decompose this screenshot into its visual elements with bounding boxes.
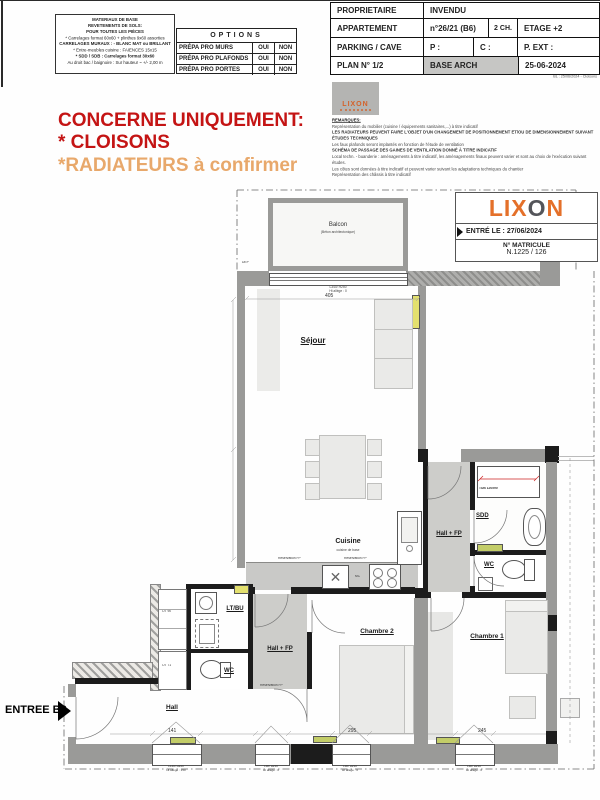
washing-machine-drum (199, 596, 213, 610)
notice-line-2: * CLOISONS (58, 132, 304, 154)
washbasin-bowl (528, 515, 541, 539)
options-table: OPTIONS PRÉPA PRO MURS OUI NON PRÉPA PRO… (176, 28, 297, 74)
hall-label: Hall (166, 704, 178, 711)
window-glass-line (270, 280, 407, 281)
cuisine-label: Cuisine (312, 538, 384, 545)
radiator (170, 737, 196, 744)
dimension-line (231, 297, 236, 562)
window-glass-line (270, 277, 407, 278)
materials-box: MATERIAUX DE BASE REVETEMENTS DE SOLS: P… (55, 14, 175, 74)
option-oui: OUI (252, 65, 274, 75)
wall-segment (461, 449, 546, 462)
dim-text: 245 (478, 728, 487, 734)
stamp-marker-icon (457, 227, 463, 237)
wc-cabinet (478, 577, 493, 591)
wall-segment (307, 632, 312, 689)
window-sill: Ht allège : 0 (449, 769, 499, 773)
shower-tub (477, 466, 540, 498)
reservation-fp-label: Réservation FP (278, 557, 301, 560)
rainwater-pipe-label: DEP (242, 261, 249, 264)
window-glass-line (256, 754, 289, 755)
window (152, 744, 202, 766)
hall-fp-right-area (428, 462, 470, 592)
option-non: NON (274, 65, 296, 75)
radiator (234, 585, 249, 594)
bed (339, 645, 414, 734)
balcony-label: Balcon (268, 222, 408, 228)
boiler-inner (199, 624, 215, 644)
remarks-line: Représentation des châssis à titre indic… (332, 173, 597, 179)
bay-window-label: L340/ H250 Ht allège : 0 (311, 285, 366, 294)
hall-fp-right-label: Hall + FP (421, 531, 477, 537)
column (546, 731, 557, 745)
notice-line-3: *RADIATEURS à confirmer (58, 155, 304, 177)
window-sill: Ht allège : 0 (246, 769, 296, 773)
terrace-rail-line (558, 460, 594, 461)
window-label: L90/ H210 Ht allège : 0 (246, 765, 296, 773)
radiator (436, 737, 460, 744)
wall-segment (414, 598, 428, 745)
options-title: OPTIONS (177, 29, 296, 43)
notice-block: CONCERNE UNIQUEMENT: * CLOISONS *RADIATE… (58, 110, 304, 177)
window (455, 744, 495, 766)
option-label: PRÉPA PRO PORTES (177, 65, 252, 75)
frame-top-line (0, 0, 600, 1)
sejour-label: Séjour (283, 336, 343, 345)
apartment-floor: ETAGE +2 (518, 19, 599, 37)
wall-segment (237, 286, 245, 568)
burner (373, 568, 383, 578)
title-block: PROPRIETAIRE INVENDU APPARTEMENT n°26/21… (330, 2, 600, 75)
notice-line-1: CONCERNE UNIQUEMENT: (58, 110, 304, 132)
apartment-rooms: 2 CH. (489, 19, 518, 37)
stamp-entered-text: ENTRÉ LE : 27/06/2024 (466, 228, 542, 235)
apartment-label: APPARTEMENT (331, 19, 424, 37)
window-swing-line (455, 725, 493, 743)
parking-ext: P. EXT : (518, 38, 599, 56)
washing-machine (195, 592, 217, 614)
owner-value: INVENDU (424, 3, 599, 18)
parking-label: PARKING / CAVE (331, 38, 424, 56)
title-block-row: PROPRIETAIRE INVENDU (331, 3, 599, 19)
option-non: NON (274, 54, 296, 64)
window-glass-line (456, 754, 494, 755)
radiator (412, 295, 420, 329)
frame-left-line (1, 0, 3, 87)
chair (305, 483, 320, 500)
window-sill: Ht allège : 150 (151, 769, 201, 773)
boiler-unit (195, 619, 219, 648)
toilet-tank (524, 559, 535, 581)
lixon-logo-lix: LIX (489, 195, 528, 222)
stamp-entered-row: ENTRÉ LE : 27/06/2024 (456, 223, 597, 240)
chair (367, 461, 382, 478)
mc-label: MC (355, 575, 360, 578)
entree-arrow-icon (58, 701, 71, 721)
plan-base-cell: BASE ARCH (424, 57, 519, 74)
dim-text: 141 (168, 728, 177, 734)
closet-label: OT 71 (162, 664, 171, 667)
structural-wall (72, 662, 153, 679)
options-row: PRÉPA PRO PLAFONDS OUI NON (177, 54, 296, 65)
matricule-value: N.1225 / 126 (456, 249, 597, 256)
balcony-sublabel: (Béton architectonique) (311, 230, 366, 234)
options-row: PRÉPA PRO MURS OUI NON (177, 43, 296, 54)
wardrobe-zone (428, 612, 453, 740)
lixon-small-dots (340, 109, 371, 111)
wall-segment (470, 462, 475, 510)
plan-date-cell: 25-06-2024 (519, 57, 599, 74)
wall-segment (418, 449, 428, 462)
window-sill: Ht allège : 0 (311, 289, 366, 293)
materials-line: CARRELAGES MURAUX : - BLANC MAT ou BRILL… (56, 42, 174, 48)
apartment-value: n°26/21 (B6) (424, 19, 489, 37)
hall-fp-mid-label: Hall + FP (253, 646, 307, 652)
chambre1-label: Chambre 1 (448, 633, 526, 640)
sink-basin (401, 517, 418, 543)
ltbu-label: LT/BU (220, 606, 250, 612)
lixon-logo-n: N (547, 195, 565, 222)
title-block-row: APPARTEMENT n°26/21 (B6) 2 CH. ETAGE +2 (331, 19, 599, 38)
window-sill: Ht allège : 0 (325, 769, 375, 773)
oven-reservation (322, 565, 349, 589)
revision-note: BL : 25/06/2024 - Cloisons (487, 75, 597, 79)
exterior-unit (560, 698, 580, 718)
shower-tub-label: TUB 120x90 (479, 487, 498, 490)
plan-number-label: PLAN N° 1/2 (331, 57, 424, 74)
wall-segment (462, 592, 546, 598)
closet-label: OT 90 (162, 610, 171, 613)
option-non: NON (274, 43, 296, 53)
option-oui: OUI (252, 54, 274, 64)
window-swing-line (255, 726, 288, 743)
remarks-block: REMARQUES: Représentation du mobilier (c… (332, 118, 597, 180)
radiator (477, 544, 503, 552)
window-label: L90/ H210 Ht allège : 0 (325, 765, 375, 773)
option-oui: OUI (252, 43, 274, 53)
wall-segment (68, 684, 76, 697)
lixon-logo: LIXON (456, 193, 597, 223)
lixon-small-logo: LIXON (332, 101, 379, 108)
wc-right-label: WC (484, 562, 494, 568)
sofa-cushion-line (375, 329, 412, 330)
wall-segment (415, 588, 428, 598)
remarks-line: LES RADIATEURS PEUVENT FAIRE L'OBJET D'U… (332, 130, 597, 142)
wall-segment (291, 744, 332, 764)
title-block-row: PARKING / CAVE P : C : P. EXT : (331, 38, 599, 57)
title-block-row: PLAN N° 1/2 BASE ARCH 25-06-2024 (331, 57, 599, 74)
lixon-stamp-box: LIXON ENTRÉ LE : 27/06/2024 N° MATRICULE… (455, 192, 598, 262)
closet (158, 651, 187, 690)
matricule-label: N° MATRICULE (456, 242, 597, 249)
option-label: PRÉPA PRO MURS (177, 43, 252, 53)
parking-p: P : (424, 38, 474, 56)
balcony-outline (268, 198, 408, 271)
nightstand (509, 696, 536, 719)
chambre2-label: Chambre 2 (338, 628, 416, 635)
sofa (374, 299, 413, 389)
window-label: L140/ H240 Ht allège : 150 (151, 765, 201, 773)
sofa-cushion-line (375, 358, 412, 359)
burner (373, 578, 383, 588)
options-row: PRÉPA PRO PORTES OUI NON (177, 65, 296, 75)
remarks-line: Local techn. - buanderie : aménagements … (332, 154, 597, 166)
bed-pillow (506, 601, 547, 612)
option-label: PRÉPA PRO PLAFONDS (177, 54, 252, 64)
wall-segment (237, 271, 269, 286)
chair (305, 439, 320, 456)
duct-zone (257, 289, 280, 391)
promoter-stamp-small: LIXON (332, 82, 379, 115)
window-glass-line (333, 754, 370, 755)
owner-label: PROPRIETAIRE (331, 3, 424, 18)
dining-table (319, 435, 366, 499)
toilet-bowl (502, 560, 526, 579)
wall-segment (248, 586, 253, 689)
reservation-fp-label: Réservation FP (260, 684, 283, 687)
column (545, 446, 559, 463)
sdd-label: SDD (476, 513, 489, 519)
window (332, 744, 371, 766)
burner (387, 578, 397, 588)
revision-text: BL : 25/06/2024 - Cloisons (553, 75, 597, 79)
washbasin (523, 508, 546, 546)
window-label: L90/ H210 Ht allège : 0 (449, 765, 499, 773)
door-arc (274, 689, 307, 722)
wall-segment (406, 271, 560, 286)
burner (387, 568, 397, 578)
wc-mid-label: WC (224, 668, 234, 674)
door-arc (76, 697, 118, 739)
bed-headboard (404, 646, 413, 733)
kitchen-sink-unit (397, 511, 422, 565)
radiator (313, 736, 337, 743)
floor-plan-sheet: MATERIAUX DE BASE REVETEMENTS DE SOLS: P… (0, 0, 600, 800)
chair (367, 439, 382, 456)
closet-shelf-line (159, 628, 186, 629)
materials-line: Au droit bac / baignoire : Sur hauteur ~… (56, 60, 174, 66)
closet (158, 589, 187, 650)
stamp-matricule-row: N° MATRICULE N.1225 / 126 (456, 240, 597, 256)
window-glass-line (153, 754, 201, 755)
wall-segment (423, 462, 428, 592)
cuisine-sublabel: cuisine de base (321, 548, 376, 552)
lixon-logo-o: O (528, 195, 547, 222)
window (255, 744, 290, 766)
sink-faucet (406, 545, 413, 552)
hall-fp-mid-area (253, 594, 307, 689)
chair (305, 461, 320, 478)
reservation-fp-label: Réservation FP (344, 557, 367, 560)
chair (367, 483, 382, 500)
cooktop (369, 564, 401, 590)
terrace-rail-line (558, 456, 594, 457)
parking-c: C : (474, 38, 518, 56)
wall-segment (191, 649, 248, 653)
